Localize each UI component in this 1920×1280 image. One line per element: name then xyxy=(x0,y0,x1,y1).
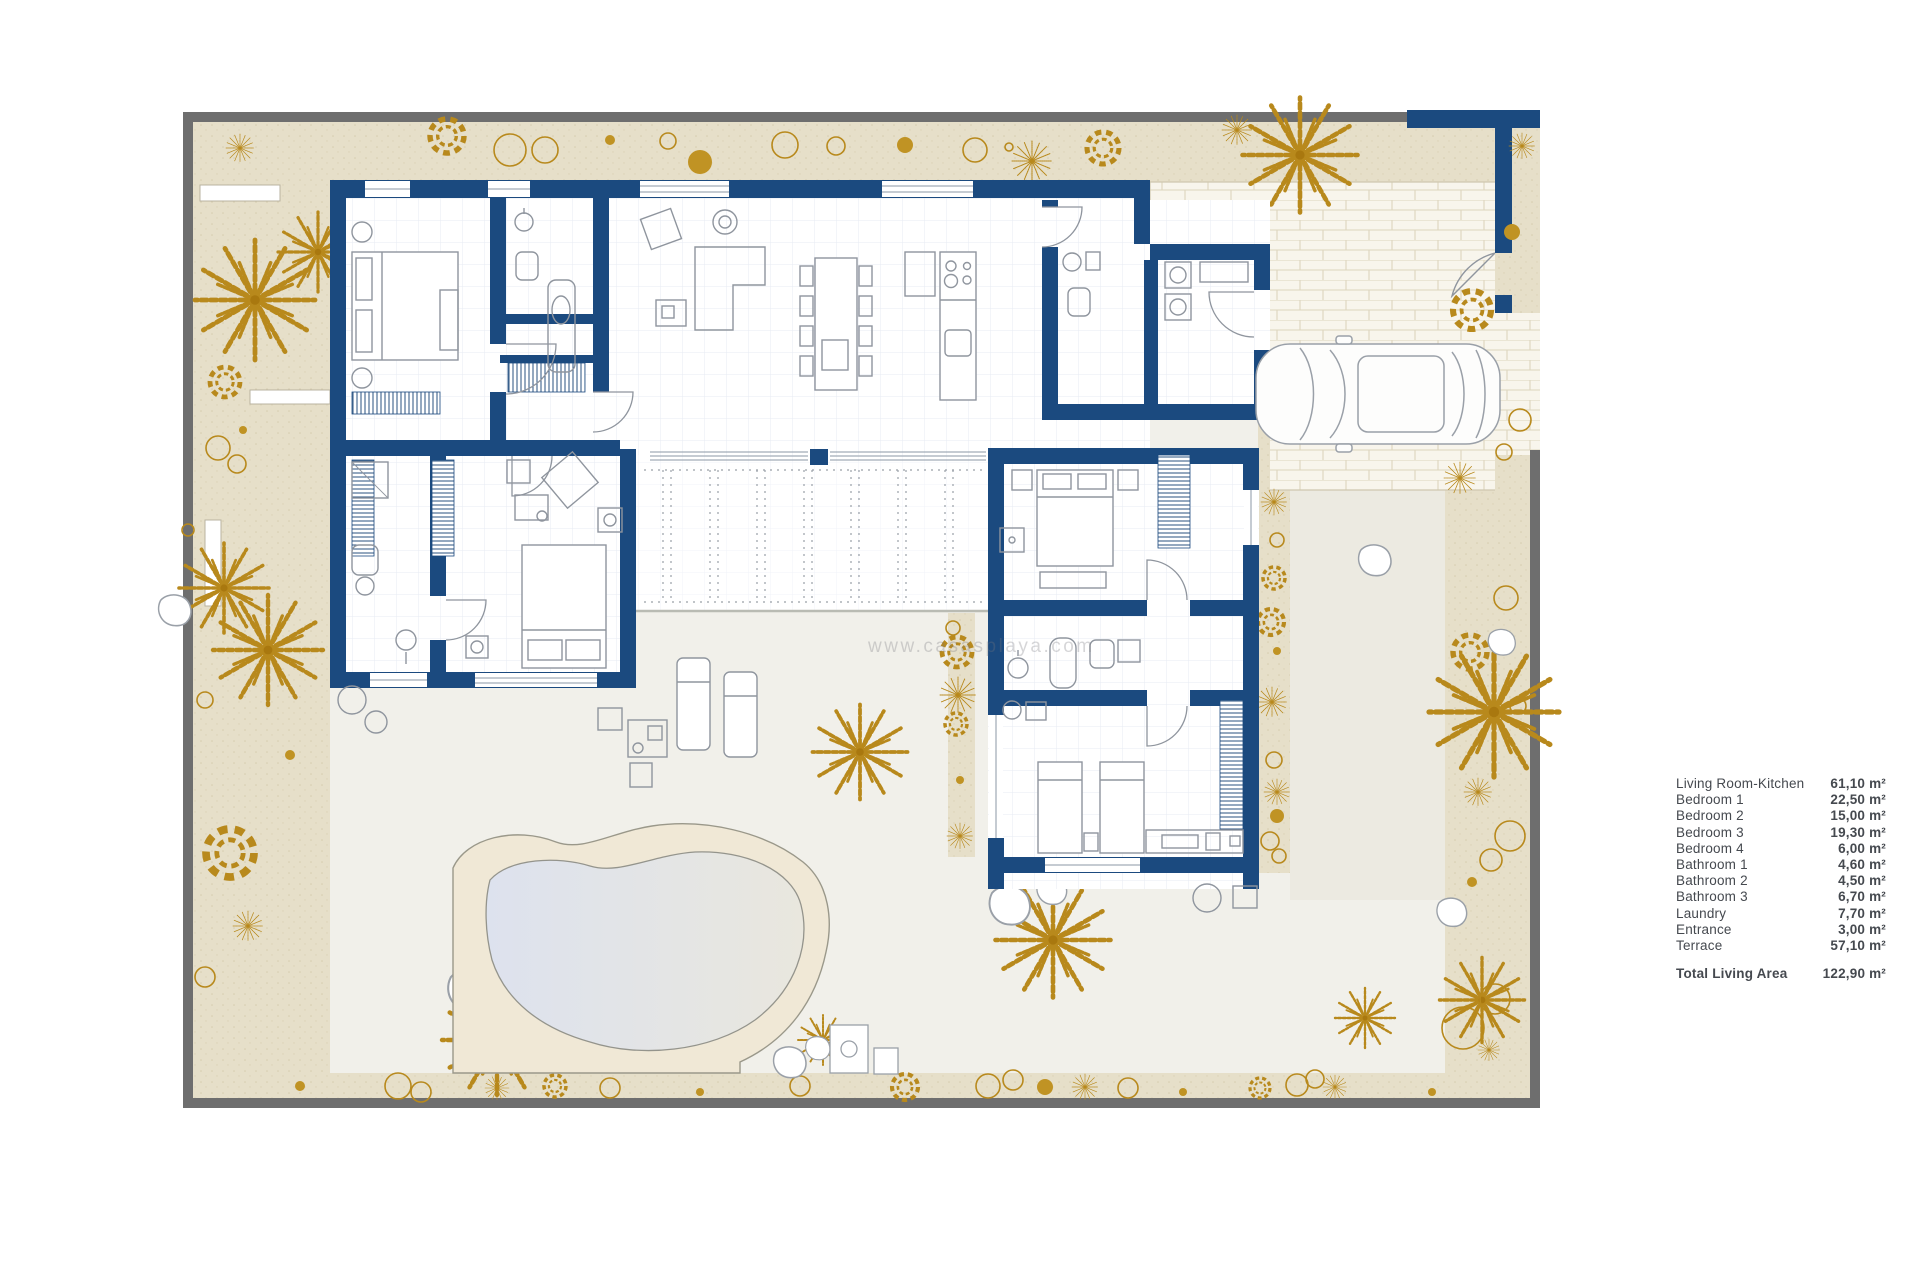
legend-row-label: Bathroom 3 xyxy=(1676,889,1748,905)
legend-row-label: Bedroom 4 xyxy=(1676,841,1744,857)
legend-row-label: Bathroom 2 xyxy=(1676,873,1748,889)
area-legend: Living Room-Kitchen61,10 m²Bedroom 122,5… xyxy=(1676,776,1886,982)
legend-row: Bedroom 215,00 m² xyxy=(1676,808,1886,824)
legend-row-label: Entrance xyxy=(1676,922,1732,938)
legend-row-value: 15,00 m² xyxy=(1830,808,1886,824)
legend-row: Bathroom 14,60 m² xyxy=(1676,857,1886,873)
legend-row-label: Living Room-Kitchen xyxy=(1676,776,1804,792)
legend-row-value: 7,70 m² xyxy=(1838,906,1886,922)
legend-row: Entrance3,00 m² xyxy=(1676,922,1886,938)
legend-row-value: 57,10 m² xyxy=(1830,938,1886,954)
car xyxy=(1256,336,1500,452)
covered-deck xyxy=(636,452,990,611)
legend-row-label: Laundry xyxy=(1676,906,1726,922)
legend-row: Bedroom 46,00 m² xyxy=(1676,841,1886,857)
watermark: www.casasplaya.com xyxy=(867,636,1095,657)
legend-row: Bathroom 24,50 m² xyxy=(1676,873,1886,889)
legend-row-value: 19,30 m² xyxy=(1830,825,1886,841)
legend-row-value: 6,70 m² xyxy=(1838,889,1886,905)
legend-row: Bedroom 122,50 m² xyxy=(1676,792,1886,808)
legend-row-value: 3,00 m² xyxy=(1838,922,1886,938)
legend-row: Terrace57,10 m² xyxy=(1676,938,1886,954)
villa-floor-plan: www.casasplaya.com xyxy=(0,0,1920,1280)
legend-row-value: 4,50 m² xyxy=(1838,873,1886,889)
legend-total-label: Total Living Area xyxy=(1676,966,1787,982)
legend-row: Bathroom 36,70 m² xyxy=(1676,889,1886,905)
legend-row-label: Bedroom 1 xyxy=(1676,792,1744,808)
legend-row-value: 61,10 m² xyxy=(1830,776,1886,792)
legend-row-label: Bedroom 3 xyxy=(1676,825,1744,841)
legend-row-value: 6,00 m² xyxy=(1838,841,1886,857)
legend-row: Living Room-Kitchen61,10 m² xyxy=(1676,776,1886,792)
legend-row-label: Bathroom 1 xyxy=(1676,857,1748,873)
legend-row-label: Terrace xyxy=(1676,938,1722,954)
legend-row: Laundry7,70 m² xyxy=(1676,906,1886,922)
legend-row-value: 22,50 m² xyxy=(1830,792,1886,808)
floor-plan-page: www.casasplaya.com Living Room-Kitchen61… xyxy=(0,0,1920,1280)
legend-row-label: Bedroom 2 xyxy=(1676,808,1744,824)
legend-row: Bedroom 319,30 m² xyxy=(1676,825,1886,841)
legend-rows: Living Room-Kitchen61,10 m²Bedroom 122,5… xyxy=(1676,776,1886,954)
legend-row-value: 4,60 m² xyxy=(1838,857,1886,873)
legend-total: Total Living Area 122,90 m² xyxy=(1676,966,1886,982)
legend-total-value: 122,90 m² xyxy=(1823,966,1886,982)
